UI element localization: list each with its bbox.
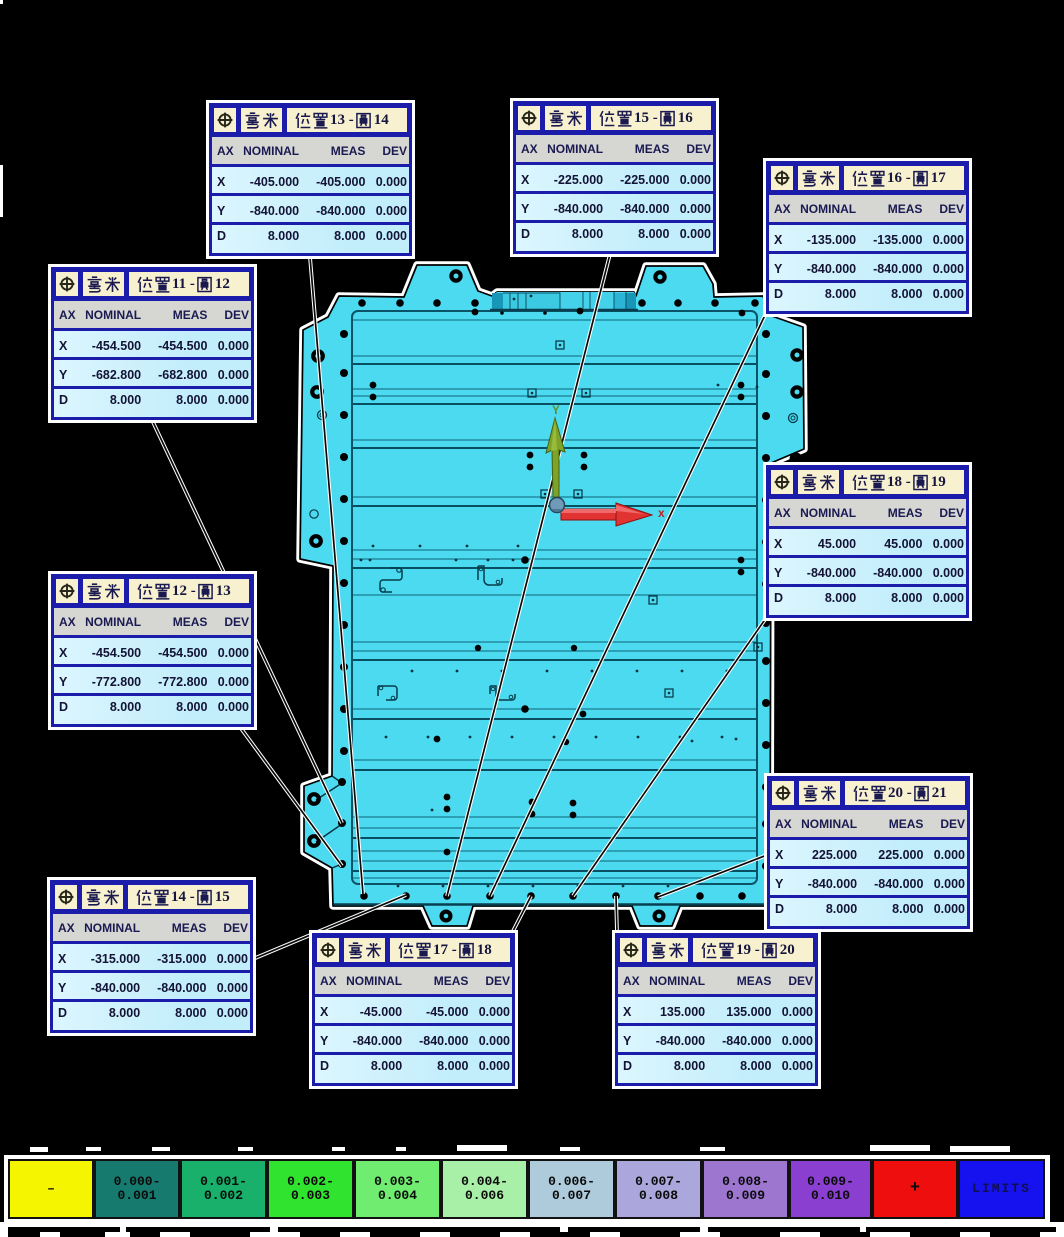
- svg-text:x: x: [658, 506, 665, 520]
- svg-text:Y: Y: [552, 405, 560, 417]
